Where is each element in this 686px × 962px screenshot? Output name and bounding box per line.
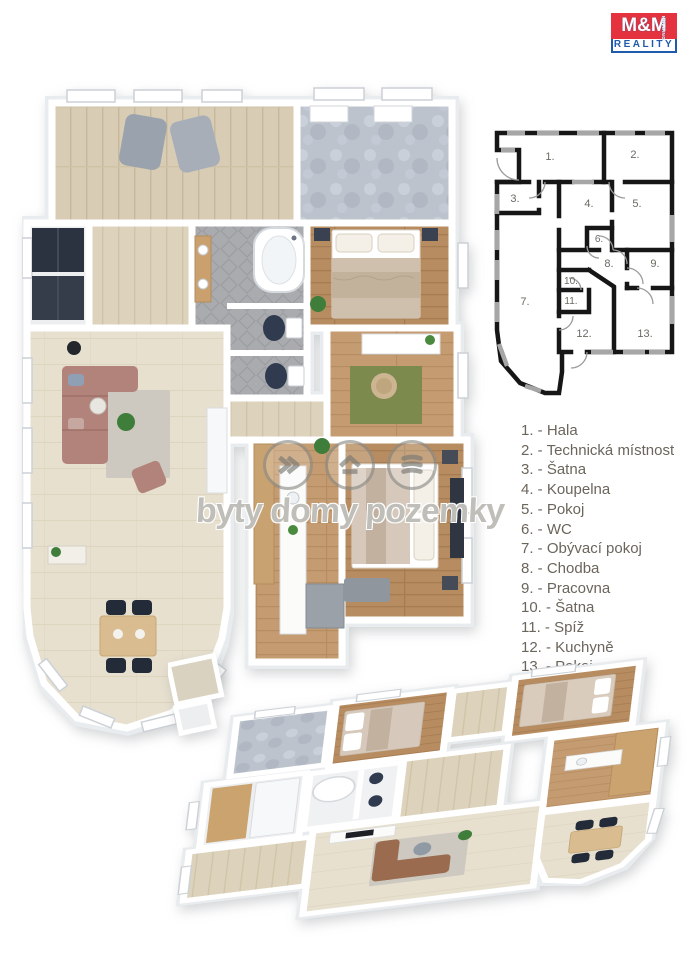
room-number-1: 1.	[545, 151, 554, 163]
floor-plan-3d-perspective	[168, 652, 686, 952]
plant	[314, 438, 330, 454]
plant	[310, 296, 326, 312]
legend-item: 10. - Šatna	[521, 598, 686, 618]
room-number-4: 4.	[584, 198, 593, 210]
appliance	[306, 584, 344, 628]
room-number-12: 12.	[576, 328, 591, 340]
room-number-5: 5.	[632, 198, 641, 210]
hala-floor	[52, 103, 297, 228]
coffee-table	[90, 398, 106, 414]
logo-holding-text: HOLDING	[650, 16, 676, 40]
legend-item: 11. - Spíž	[521, 618, 686, 638]
room-number-9: 9.	[650, 258, 659, 270]
floor-lamp	[67, 341, 81, 355]
room-number-8: 8.	[604, 258, 613, 270]
room-number-13: 13.	[637, 328, 652, 340]
schematic-doors	[497, 158, 653, 368]
sideboard	[48, 546, 86, 564]
rug	[106, 390, 170, 478]
logo-brand: M&M HOLDING	[611, 13, 677, 39]
room-number-10: 10.	[564, 276, 578, 287]
legend-item: 7. - Obývací pokoj	[521, 539, 686, 559]
logo-division: REALITY	[611, 39, 677, 53]
real-estate-floorplan-sheet: 1. 2. 3. 4. 5. 6. 7. 8. 9. 10. 11. 12. 1…	[0, 0, 686, 962]
plant	[117, 413, 135, 431]
floor-plan-3d-top	[22, 78, 480, 738]
room-legend: 1. - Hala 2. - Technická místnost 3. - Š…	[521, 421, 686, 677]
schematic-walls	[497, 133, 672, 393]
room-number-6: 6.	[595, 234, 603, 245]
island	[280, 466, 306, 634]
mm-reality-logo: M&M HOLDING REALITY	[611, 13, 677, 53]
cabinet-row	[207, 408, 227, 493]
room-number-2: 2.	[630, 149, 639, 161]
floor-plan-2d-schematic: 1. 2. 3. 4. 5. 6. 7. 8. 9. 10. 11. 12. 1…	[487, 120, 685, 408]
legend-item: 3. - Šatna	[521, 460, 686, 480]
chodba-floor	[89, 223, 192, 328]
room-number-11: 11.	[564, 296, 577, 307]
legend-item: 6. - WC	[521, 520, 686, 540]
bench	[344, 578, 390, 602]
room-number-3: 3.	[510, 193, 519, 205]
legend-item: 2. - Technická místnost	[521, 441, 686, 461]
legend-item: 4. - Koupelna	[521, 480, 686, 500]
legend-item: 9. - Pracovna	[521, 579, 686, 599]
legend-item: 5. - Pokoj	[521, 500, 686, 520]
balcony-fragment	[168, 656, 221, 734]
legend-item: 1. - Hala	[521, 421, 686, 441]
room-number-7: 7.	[520, 296, 529, 308]
legend-item: 8. - Chodba	[521, 559, 686, 579]
